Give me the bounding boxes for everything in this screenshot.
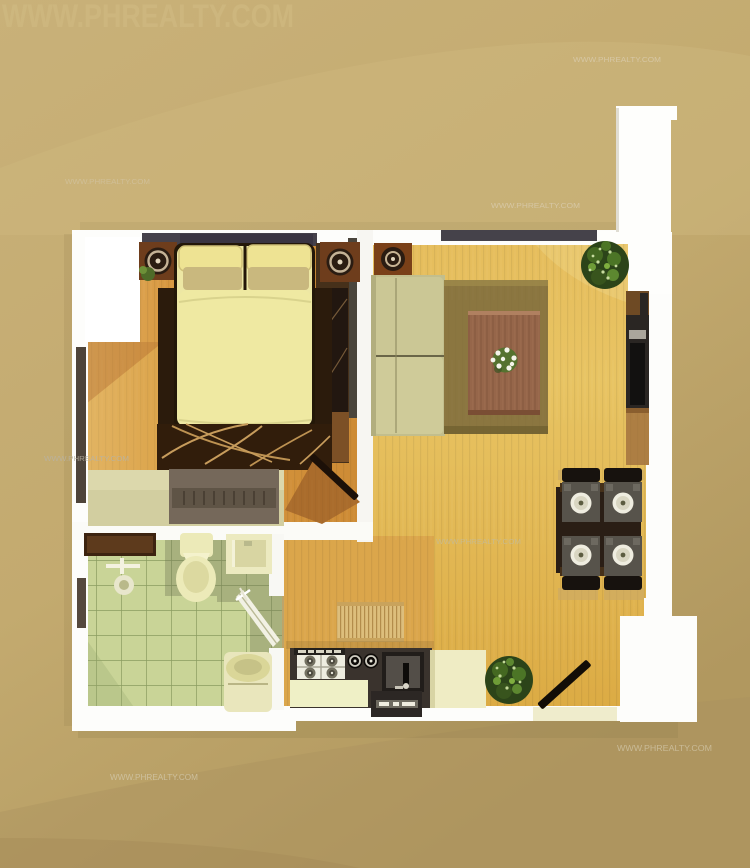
svg-text:WWW.PHREALTY.COM: WWW.PHREALTY.COM <box>436 537 521 546</box>
svg-text:WWW.PHREALTY.COM: WWW.PHREALTY.COM <box>491 201 580 210</box>
svg-text:WWW.PHREALTY.COM: WWW.PHREALTY.COM <box>44 454 129 463</box>
svg-text:WWW.PHREALTY.COM: WWW.PHREALTY.COM <box>573 55 661 64</box>
svg-text:WWW.PHREALTY.COM: WWW.PHREALTY.COM <box>110 773 198 782</box>
svg-text:WWW.PHREALTY.COM: WWW.PHREALTY.COM <box>617 744 712 753</box>
svg-text:WWW.PHREALTY.COM: WWW.PHREALTY.COM <box>2 0 294 34</box>
svg-text:WWW.PHREALTY.COM: WWW.PHREALTY.COM <box>65 177 150 186</box>
